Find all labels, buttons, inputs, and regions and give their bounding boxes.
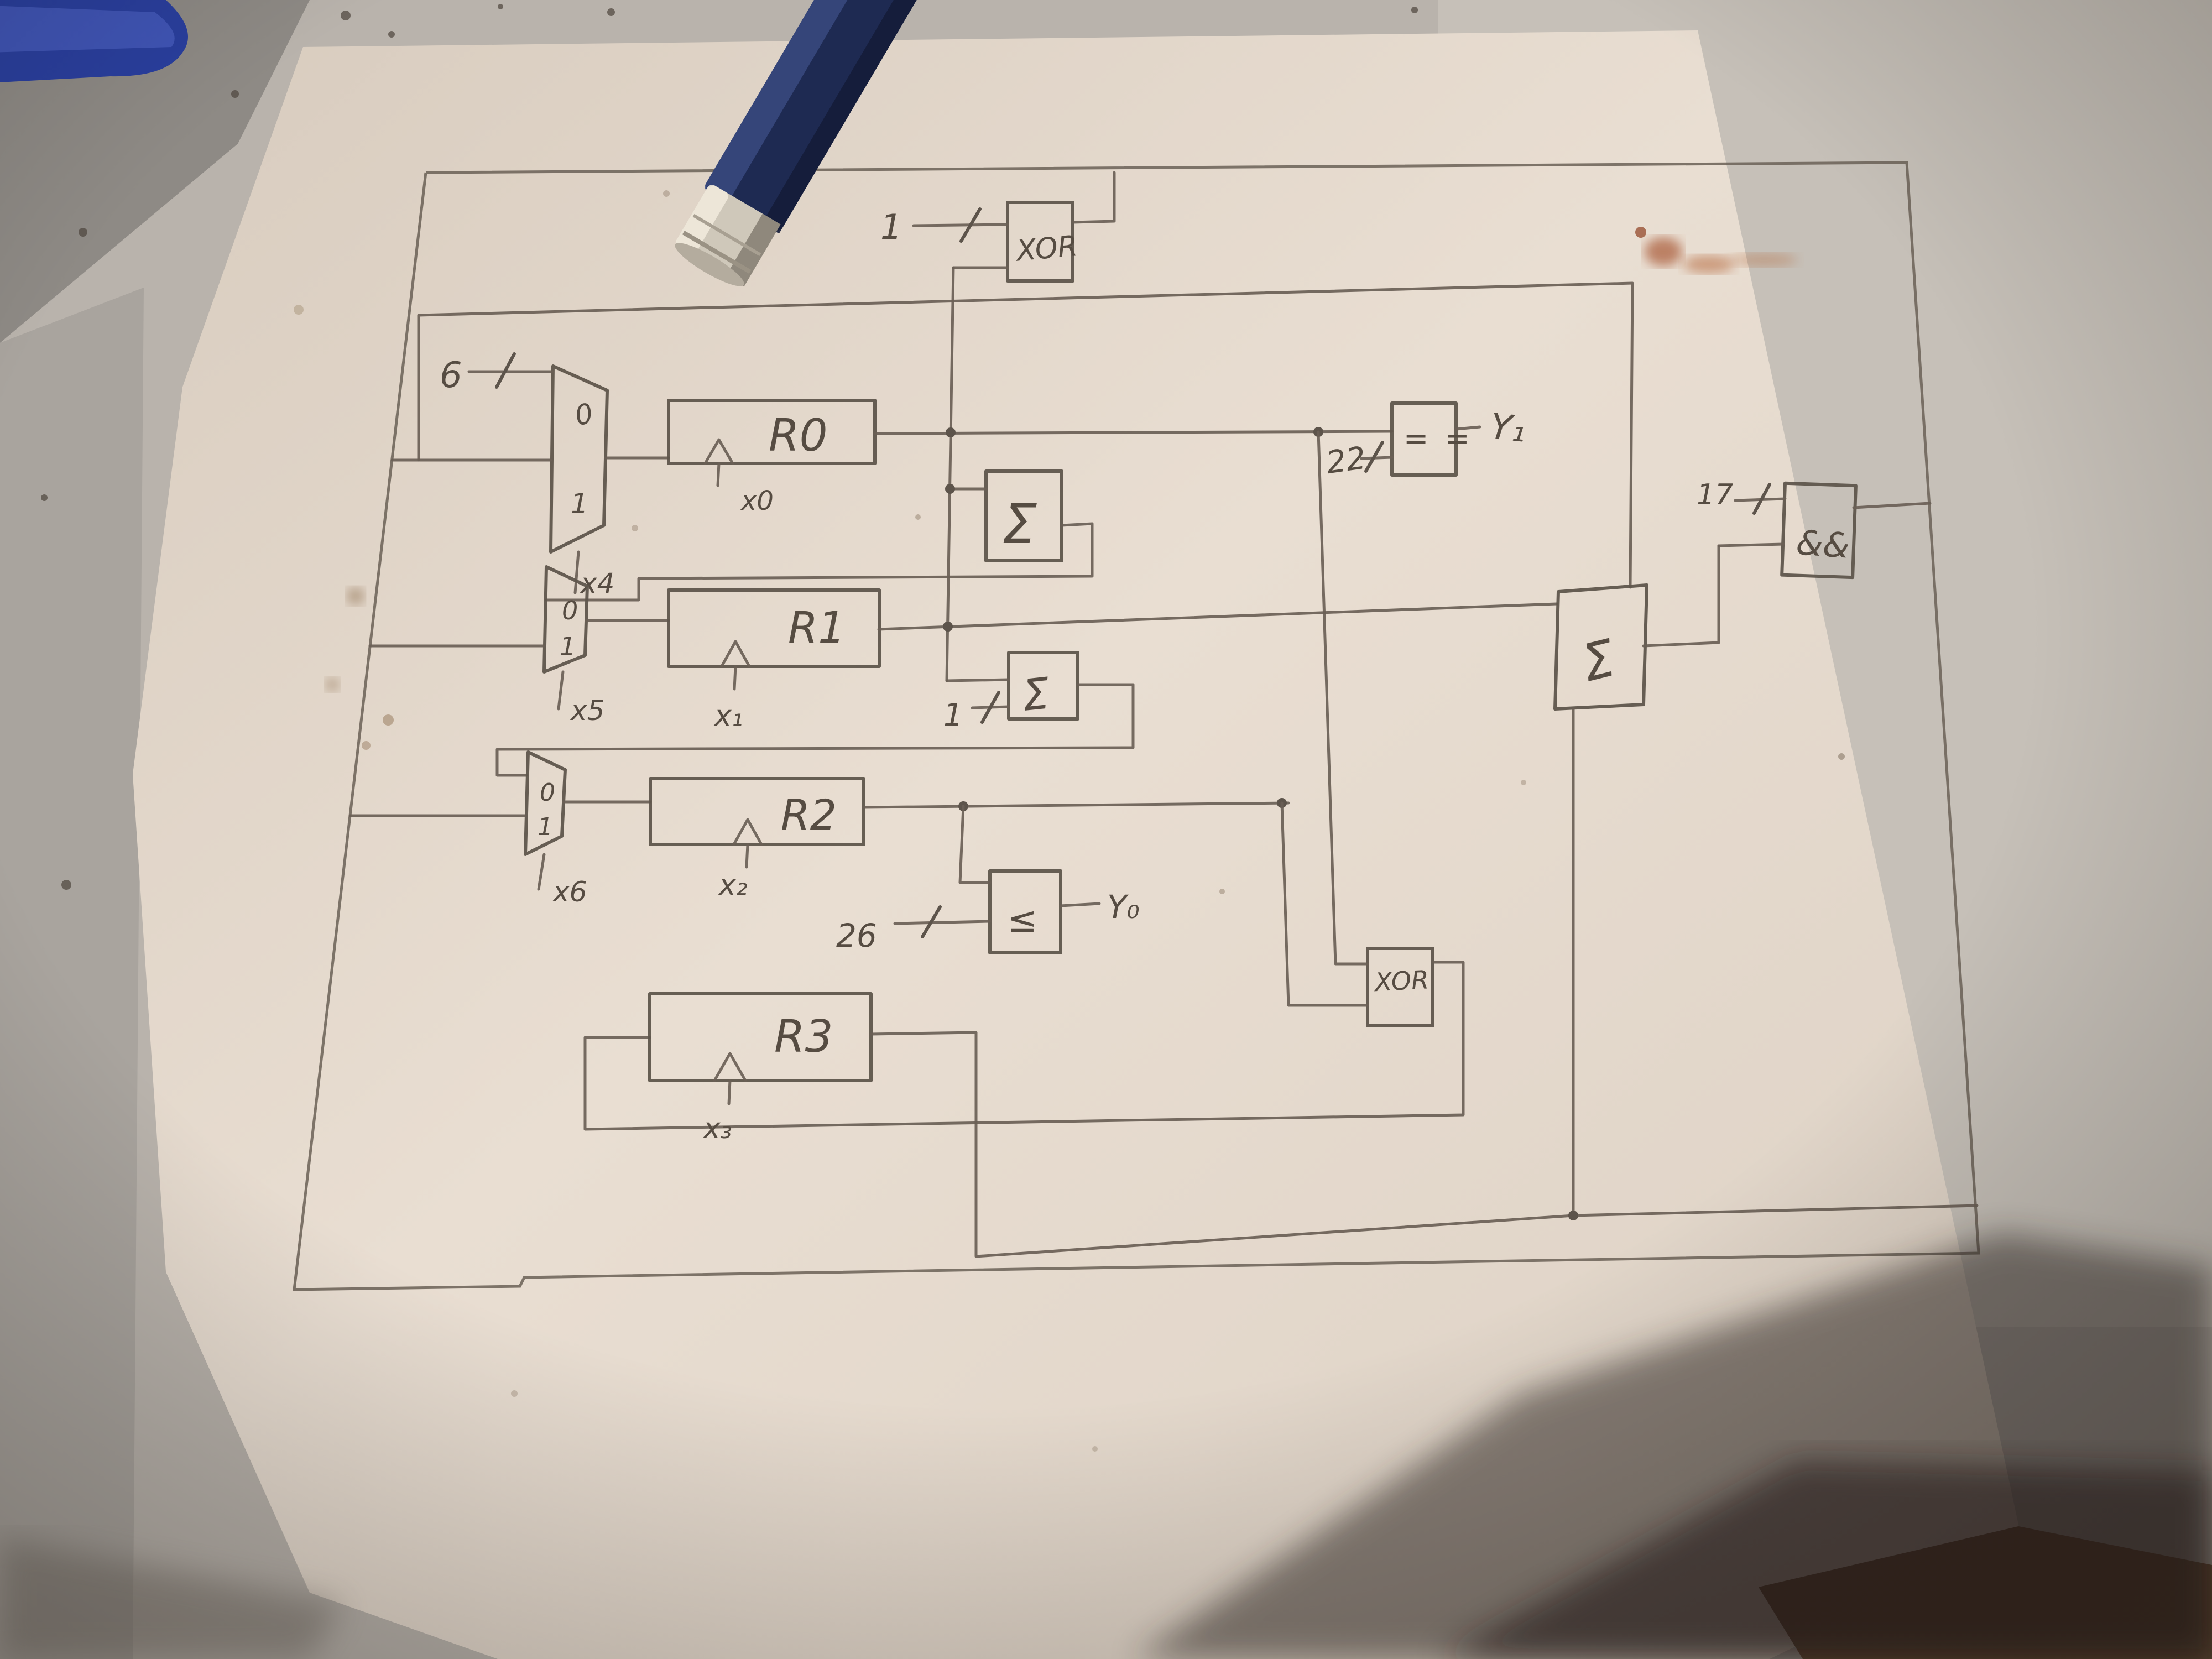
photo-canvas: XOR 1 0 1 6 x4 R0 x0 Σ 0 (0, 0, 2212, 1659)
photo-scene: XOR 1 0 1 6 x4 R0 x0 Σ 0 (0, 0, 2212, 1659)
shadows (0, 0, 2212, 1659)
vignette (0, 0, 2212, 1659)
